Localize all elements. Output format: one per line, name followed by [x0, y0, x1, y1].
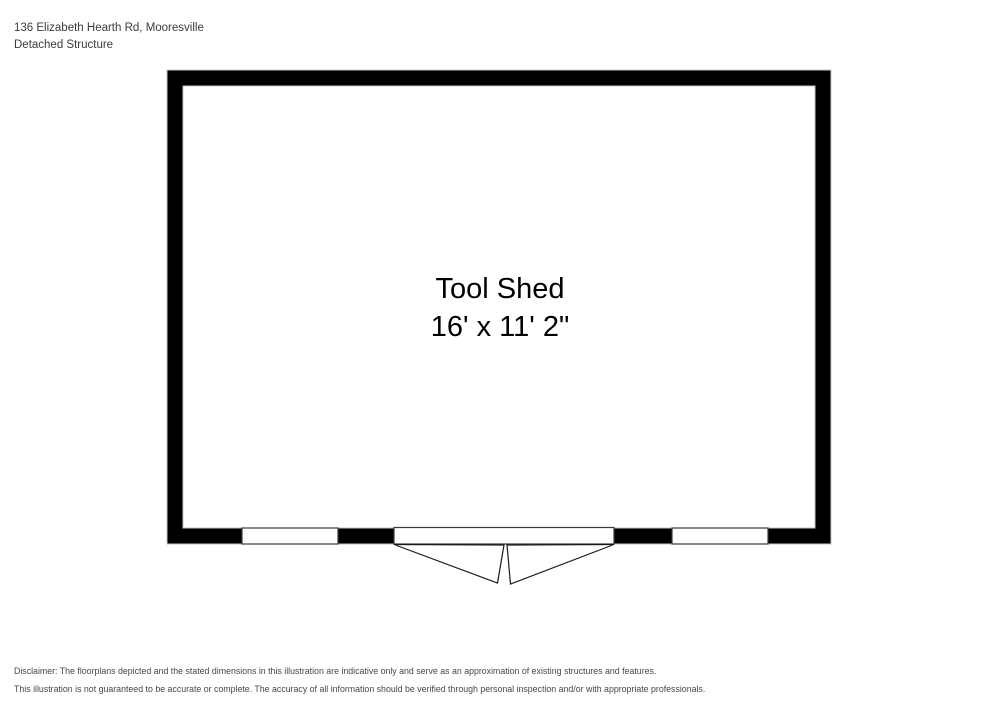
floorplan-canvas: Tool Shed 16' x 11' 2": [0, 0, 1000, 707]
room-name-label: Tool Shed: [436, 273, 565, 305]
door-swing-right: [507, 545, 614, 585]
disclaimer-line-1: Disclaimer: The floorplans depicted and …: [14, 663, 705, 681]
shed-floor: [183, 86, 815, 528]
door-swing-left: [394, 545, 504, 584]
disclaimer-line-2: This illustration is not guaranteed to b…: [14, 681, 705, 699]
disclaimer: Disclaimer: The floorplans depicted and …: [14, 663, 705, 698]
window-right: [672, 528, 768, 544]
floorplan-page: 136 Elizabeth Hearth Rd, Mooresville Det…: [0, 0, 1000, 707]
window-left: [242, 528, 338, 544]
double-door-opening: [394, 528, 614, 545]
room-dimensions-label: 16' x 11' 2": [431, 311, 570, 343]
